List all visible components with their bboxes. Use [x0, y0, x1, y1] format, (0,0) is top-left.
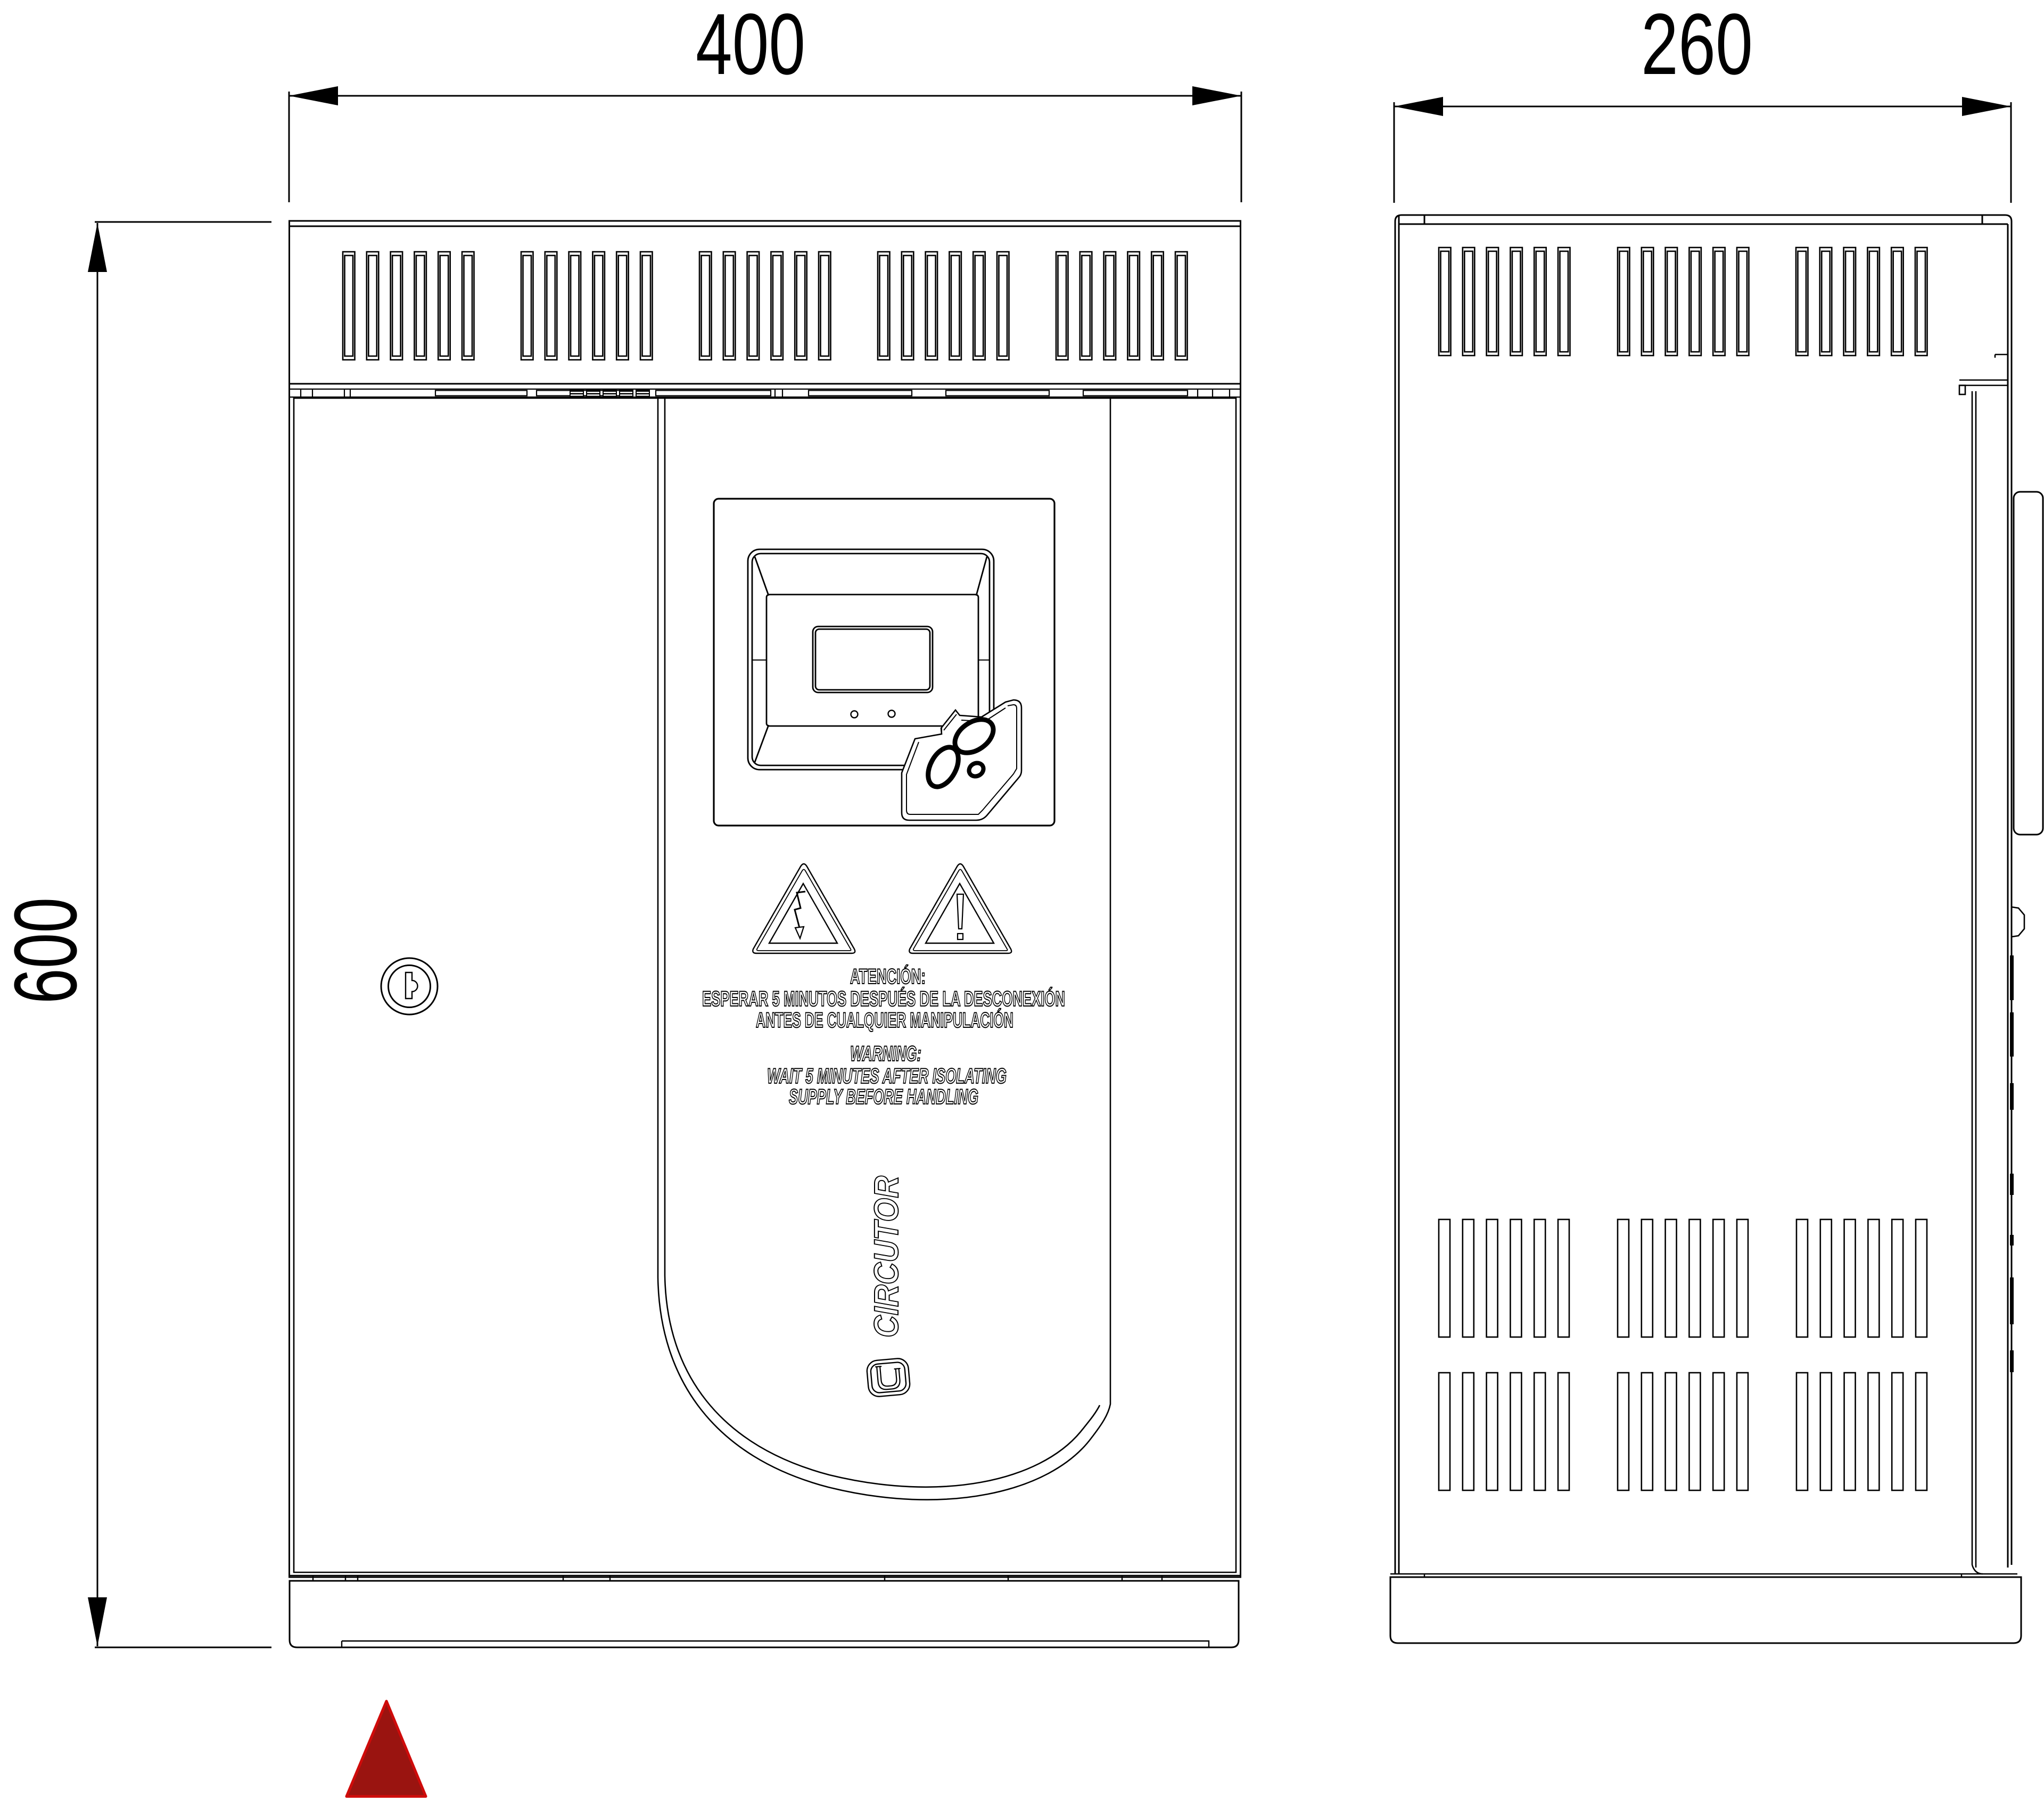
svg-text:ANTES DE CUALQUIER MANIPULACIÓ: ANTES DE CUALQUIER MANIPULACIÓN — [756, 1008, 1013, 1032]
svg-text:260: 260 — [1641, 0, 1753, 93]
svg-text:SUPPLY BEFORE HANDLING: SUPPLY BEFORE HANDLING — [789, 1085, 978, 1109]
svg-text:WAIT 5 MINUTES AFTER ISOLATING: WAIT 5 MINUTES AFTER ISOLATING — [767, 1065, 1007, 1088]
svg-text:CIRCUTOR: CIRCUTOR — [867, 1176, 905, 1338]
svg-text:ATENCIÓN:: ATENCIÓN: — [850, 964, 926, 988]
svg-text:ESPERAR 5 MINUTOS DESPUÉS DE L: ESPERAR 5 MINUTOS DESPUÉS DE LA DESCONEX… — [702, 986, 1065, 1011]
svg-text:400: 400 — [696, 0, 805, 93]
svg-text:WARNING:: WARNING: — [850, 1042, 921, 1066]
svg-text:600: 600 — [0, 897, 95, 1004]
